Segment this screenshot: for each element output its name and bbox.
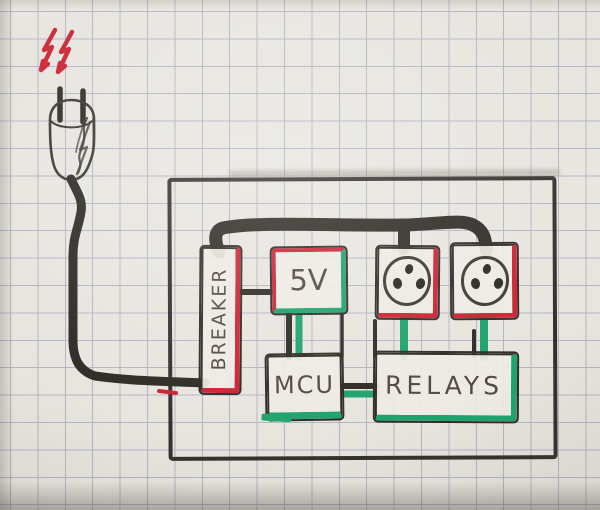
outlet-socket-2 [452,244,518,318]
psu-label: 5V [289,263,328,297]
breaker-box: BREAKER [200,247,240,393]
cord-junction-mark [159,391,176,393]
socket-hole [492,277,504,290]
breaker-label: BREAKER [208,267,231,370]
socket-hole [482,263,492,275]
paper-background: BREAKER 5V MCU RELAYS [0,0,600,510]
power-plug-icon [50,89,205,393]
psu-5v-box: 5V [272,248,347,314]
relays-label: RELAYS [385,370,503,400]
socket-hole [414,277,426,290]
socket-hole [404,263,414,275]
power-cord [71,179,205,383]
relays-box: RELAYS [375,353,517,422]
socket-face-icon [383,256,431,306]
socket-hole [392,277,403,289]
lightning-icon [41,30,72,72]
mains-wire [216,222,486,252]
mcu-label: MCU [274,370,335,399]
mcu-box: MCU [267,354,343,419]
socket-face-icon [461,256,509,306]
socket-hole [470,277,481,289]
outlet-socket-1 [377,247,439,319]
